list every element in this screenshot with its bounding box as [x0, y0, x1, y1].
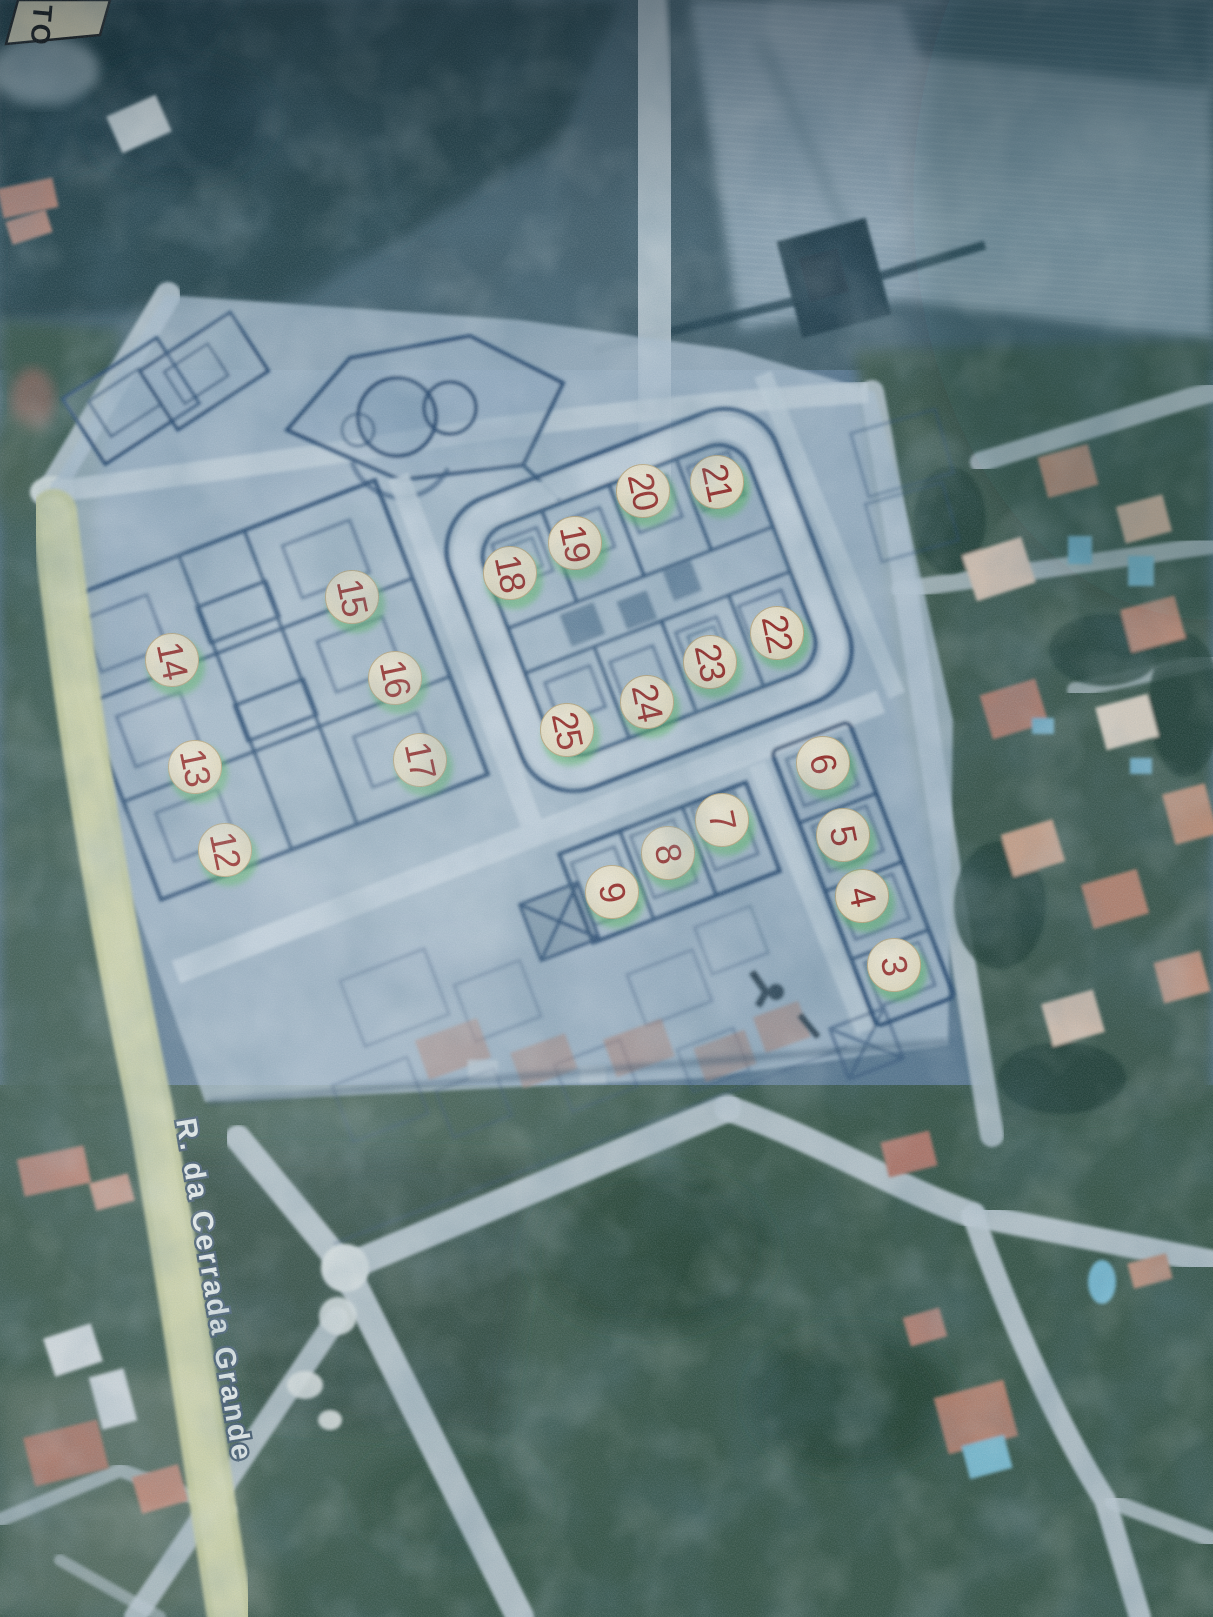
aerial-map-photo: R. da Cerrada Grande TO 3456789121314151…: [0, 0, 1213, 1617]
map-scene: R. da Cerrada Grande TO 3456789121314151…: [0, 0, 1213, 1617]
photo-grain-overlay: [0, 0, 1213, 1617]
